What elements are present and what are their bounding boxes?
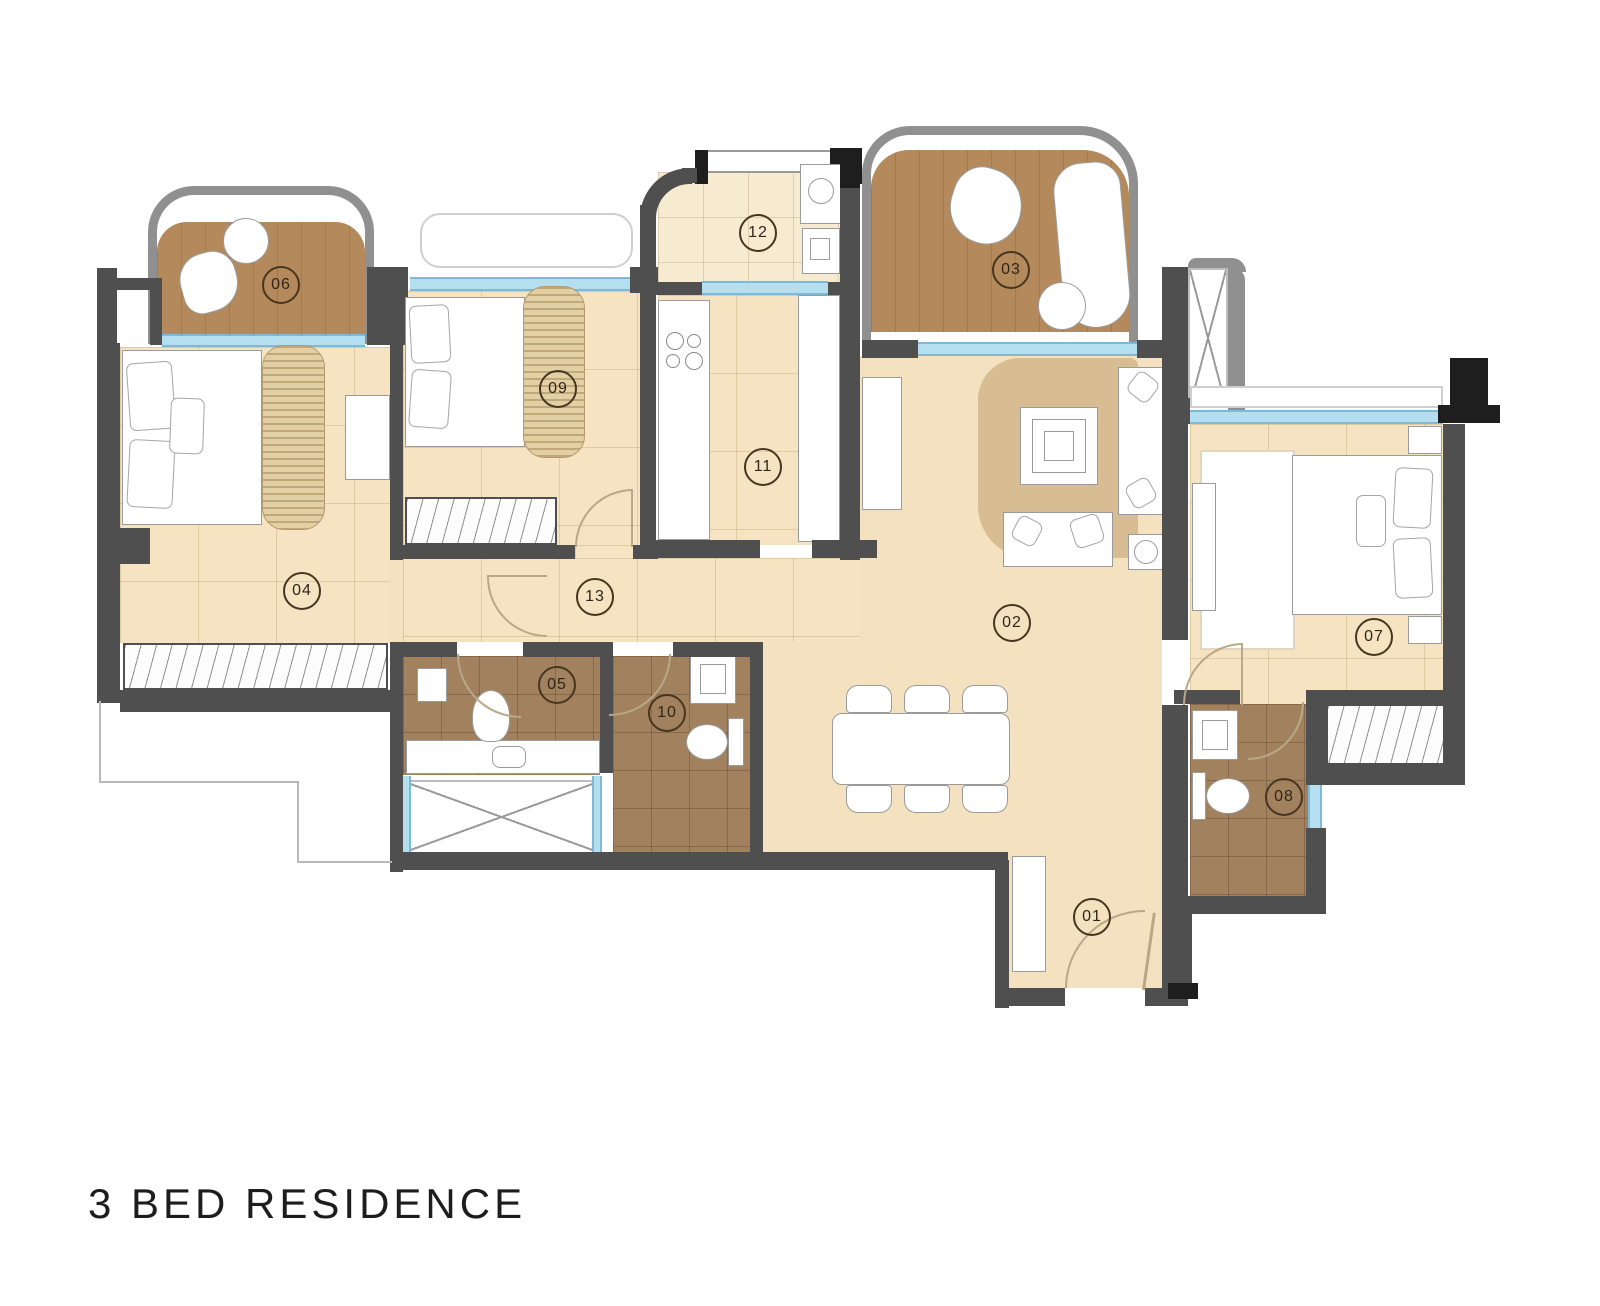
- shower-box: [403, 780, 600, 854]
- plan-title: 3 BED RESIDENCE: [88, 1180, 526, 1228]
- room-label-07: 07: [1355, 618, 1393, 656]
- dining-chair: [846, 785, 892, 813]
- bedroom-04-window: [162, 334, 365, 347]
- living-window: [918, 342, 1137, 356]
- bedroom-09-south-wall-right: [633, 545, 658, 559]
- bath-block-left-jamb: [390, 642, 403, 872]
- washing-machine-drum: [808, 178, 834, 204]
- bedroom-09-pillow: [409, 304, 452, 364]
- bedroom-04-door-gap: [390, 560, 403, 642]
- room-label-03-text: 03: [1001, 261, 1021, 279]
- bath-05-vanity-basin: [492, 746, 526, 768]
- bath-08-sink-basin: [1202, 720, 1228, 750]
- bath-08-toilet-bowl: [1206, 778, 1250, 814]
- bedroom-04-bed-runner: [262, 345, 325, 530]
- bath-08-toilet-tank: [1192, 772, 1206, 820]
- bedroom-09-doorway-floor: [575, 545, 633, 559]
- dining-chair: [962, 785, 1008, 813]
- wardrobe-07-top-wall: [1326, 690, 1445, 704]
- kitchen-south-wall-right: [812, 540, 877, 558]
- dining-chair: [962, 685, 1008, 713]
- exterior-outline: [99, 781, 299, 783]
- dining-table: [832, 713, 1010, 785]
- bath-10-sink-basin: [700, 664, 726, 694]
- bedroom-07-corner-block-h: [1438, 405, 1500, 423]
- entry-recess-right-wall: [1174, 914, 1192, 994]
- kitchen-left-wall: [640, 205, 656, 558]
- bedroom-09-south-wall: [390, 545, 575, 559]
- room-label-02: 02: [993, 604, 1031, 642]
- kitchen-right-counter: [798, 295, 840, 542]
- shower-glass-right: [592, 776, 602, 856]
- floor-plan: 01 02 03 04 05 06 07 08 09 10 11 12 13 3…: [0, 0, 1600, 1306]
- bedroom-04-left-wall: [97, 343, 120, 703]
- kitchen-right-wall: [840, 150, 860, 560]
- living-07-wall-upper: [1162, 410, 1188, 640]
- room-label-02-text: 02: [1002, 614, 1022, 632]
- kitchen-right-wall-accent: [840, 150, 860, 188]
- passage-13-floor: [403, 558, 877, 642]
- bedroom-07-nightstand: [1408, 426, 1442, 454]
- room-label-01: 01: [1073, 898, 1111, 936]
- room-label-04-text: 04: [292, 582, 312, 600]
- bath-10-toilet-tank: [728, 718, 744, 766]
- bedroom-07-pillow-small: [1356, 495, 1386, 547]
- bedroom-04-pillow: [169, 397, 205, 454]
- room-label-01-text: 01: [1082, 908, 1102, 926]
- bedroom-07-right-wall: [1443, 424, 1465, 769]
- room-label-13: 13: [576, 578, 614, 616]
- left-jamb-arm: [117, 278, 162, 290]
- room-label-03: 03: [992, 251, 1030, 289]
- bedroom-07-corner-block-v: [1450, 358, 1488, 408]
- bath-top-wall-a: [390, 642, 457, 657]
- room-label-05-text: 05: [547, 676, 567, 694]
- side-table-top: [1134, 540, 1158, 564]
- shaft-left-wall: [1162, 267, 1188, 410]
- entry-left-wall: [995, 860, 1009, 1008]
- tv-console: [862, 377, 902, 510]
- room-label-10-text: 10: [657, 704, 677, 722]
- left-jamb-inner: [150, 290, 162, 345]
- dining-chair: [846, 685, 892, 713]
- bedroom-07-nightstand: [1408, 616, 1442, 644]
- room-label-11-text: 11: [754, 458, 773, 476]
- room-label-06: 06: [262, 266, 300, 304]
- stove: [662, 328, 708, 400]
- living-07-wall-lower: [1162, 705, 1188, 852]
- balcony-06-table: [223, 218, 269, 264]
- utility-window-left-wall: [656, 282, 702, 295]
- bedroom-09-wardrobe: [405, 497, 557, 545]
- balcony-03-round-table: [1038, 282, 1086, 330]
- south-wall-main: [390, 852, 1008, 870]
- bedroom-04-south-wall: [120, 690, 403, 712]
- bath-08-bottom-wall: [1174, 896, 1310, 914]
- room-label-09: 09: [539, 370, 577, 408]
- bedroom-04-door-leaf: [487, 575, 547, 577]
- bedroom-04-pillow: [126, 439, 175, 509]
- bedroom-04-dresser: [345, 395, 390, 480]
- bath-10-toilet-bowl: [686, 724, 728, 760]
- bedroom-07-window: [1190, 410, 1443, 424]
- room-label-12: 12: [739, 214, 777, 252]
- bedroom-04-pillow: [126, 360, 177, 431]
- balcony-06-right-block: [367, 267, 408, 345]
- room-label-07-text: 07: [1364, 628, 1384, 646]
- bedroom-09-window: [410, 277, 633, 291]
- room-label-05: 05: [538, 666, 576, 704]
- room-label-13-text: 13: [585, 588, 605, 606]
- bedroom-09-pillow: [408, 369, 452, 430]
- room-label-11: 11: [744, 448, 782, 486]
- bedroom-04-wall-pilaster: [120, 528, 150, 564]
- dining-chair: [904, 685, 950, 713]
- utility-kitchen-window: [702, 281, 828, 295]
- room-label-09-text: 09: [548, 380, 568, 398]
- bath-08-right-wall-upper: [1306, 690, 1326, 770]
- bath-10-right-wall: [750, 642, 763, 852]
- bath-05-wall-basin: [417, 668, 447, 702]
- room-label-10: 10: [648, 694, 686, 732]
- bedroom-04-wardrobe: [123, 643, 388, 690]
- utility-top-arm: [682, 168, 697, 183]
- bedroom-04-east-wall: [390, 345, 403, 560]
- dining-chair: [904, 785, 950, 813]
- room-label-04: 04: [283, 572, 321, 610]
- room-label-08-text: 08: [1274, 788, 1294, 806]
- bedroom-07-ledge: [1190, 386, 1443, 408]
- utility-sink-basin: [810, 238, 830, 260]
- bedroom-07-wardrobe: [1326, 704, 1445, 765]
- entry-bottom-wall-left: [1008, 988, 1065, 1006]
- bedroom-07-door-leaf: [1241, 645, 1243, 705]
- room-label-06-text: 06: [271, 276, 291, 294]
- bedroom-07-pillow: [1392, 537, 1433, 599]
- bedroom-09-ledge: [420, 213, 633, 268]
- living-window-left-jamb: [862, 340, 918, 358]
- wardrobe-07-bottom-wall: [1306, 765, 1465, 785]
- exterior-outline: [99, 701, 101, 783]
- room-label-08: 08: [1265, 778, 1303, 816]
- entry-console: [1012, 856, 1046, 972]
- bedroom-07-tv-unit: [1192, 483, 1216, 611]
- exterior-outline: [297, 781, 299, 863]
- bath-top-wall-c: [673, 642, 750, 657]
- room-label-12-text: 12: [748, 224, 768, 242]
- bedroom-07-pillow: [1392, 467, 1433, 529]
- bedroom-09-door-leaf: [631, 489, 633, 547]
- entry-recess-wall-cap: [1168, 983, 1198, 999]
- coffee-table-spiral-inner: [1044, 431, 1074, 461]
- left-jamb-outer: [97, 268, 117, 345]
- kitchen-south-wall-left: [640, 540, 760, 558]
- exterior-outline: [297, 861, 392, 863]
